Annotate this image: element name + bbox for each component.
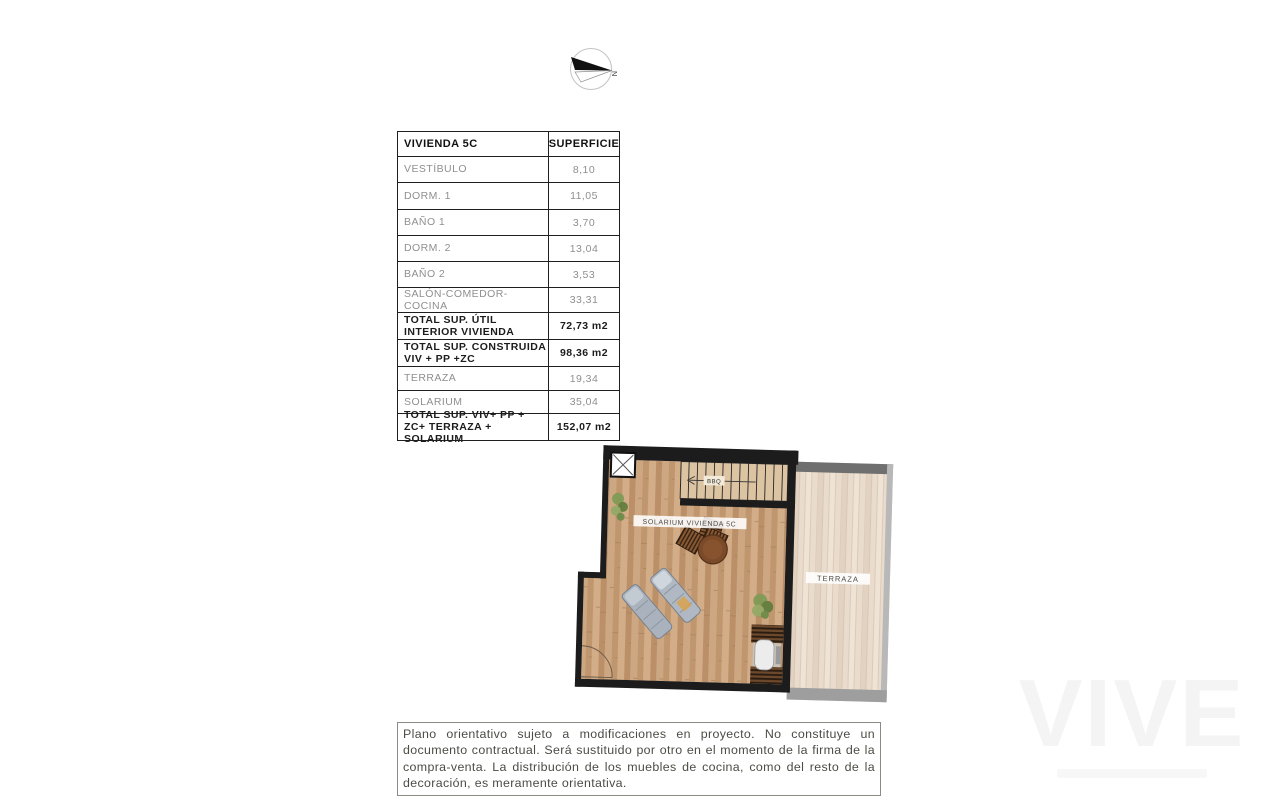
row-label: VESTÍBULO <box>398 163 548 175</box>
skylight-box <box>611 453 636 478</box>
south-needle-icon <box>575 71 612 83</box>
row-label: TOTAL SUP. ÚTIL INTERIOR VIVIENDA <box>398 314 548 338</box>
table-row-total: TOTAL SUP. CONSTRUIDA VIV + PP +ZC 98,36… <box>398 339 619 366</box>
row-value: 35,04 <box>548 391 619 413</box>
table-row: DORM. 1 11,05 <box>398 182 619 209</box>
row-value: 13,04 <box>548 236 619 261</box>
row-value: 19,34 <box>548 367 619 390</box>
row-value: 3,70 <box>548 210 619 235</box>
bbq-bench <box>750 624 784 684</box>
bbq-cylinder <box>754 640 774 671</box>
table-row-total: TOTAL SUP. ÚTIL INTERIOR VIVIENDA 72,73 … <box>398 312 619 339</box>
floor-plan: BBQ <box>571 442 898 711</box>
row-label: TOTAL SUP. CONSTRUIDA VIV + PP +ZC <box>398 341 548 365</box>
watermark-tagline <box>1057 769 1207 778</box>
row-value: 11,05 <box>548 183 619 209</box>
stair-label: BBQ <box>707 479 721 485</box>
table-header-dwelling: VIVIENDA 5C <box>398 138 548 151</box>
vive-watermark: VIVE <box>992 673 1272 778</box>
row-label: BAÑO 1 <box>398 216 548 228</box>
table-header-row: VIVIENDA 5C SUPERFICIE <box>398 132 619 156</box>
compass-n-label: N <box>610 71 619 76</box>
north-needle-icon <box>571 57 612 71</box>
row-value: 33,31 <box>548 288 619 312</box>
terrace-label: TERRAZA <box>817 574 859 584</box>
table-row: TERRAZA 19,34 <box>398 366 619 390</box>
row-value: 3,53 <box>548 262 619 287</box>
table-row: BAÑO 1 3,70 <box>398 209 619 235</box>
surface-table: VIVIENDA 5C SUPERFICIE VESTÍBULO 8,10 DO… <box>397 131 620 441</box>
row-value: 98,36 m2 <box>548 340 619 366</box>
row-value: 152,07 m2 <box>548 414 619 440</box>
row-label: DORM. 1 <box>398 190 548 202</box>
disclaimer-box: Plano orientativo sujeto a modificacione… <box>397 722 881 796</box>
staircase: BBQ <box>680 461 788 501</box>
solarium-floor <box>581 576 608 680</box>
table-row-total: TOTAL SUP. VIV+ PP + ZC+ TERRAZA + SOLAR… <box>398 413 619 440</box>
row-value: 72,73 m2 <box>548 313 619 339</box>
row-label: DORM. 2 <box>398 242 548 254</box>
table-row: BAÑO 2 3,53 <box>398 261 619 287</box>
row-label: TOTAL SUP. VIV+ PP + ZC+ TERRAZA + SOLAR… <box>398 409 548 445</box>
bbq-handle <box>776 646 782 664</box>
watermark-logo: VIVE <box>992 673 1272 755</box>
table-row: SALÓN-COMEDOR-COCINA 33,31 <box>398 287 619 312</box>
row-value: 8,10 <box>548 157 619 182</box>
table-row: DORM. 2 13,04 <box>398 235 619 261</box>
row-label: SOLARIUM <box>398 396 548 408</box>
row-label: BAÑO 2 <box>398 268 548 280</box>
table-row: VESTÍBULO 8,10 <box>398 156 619 182</box>
table-header-surface: SUPERFICIE <box>548 132 619 156</box>
row-label: SALÓN-COMEDOR-COCINA <box>398 288 548 312</box>
disclaimer-text: Plano orientativo sujeto a modificacione… <box>403 727 875 790</box>
row-label: TERRAZA <box>398 372 548 384</box>
north-compass: N <box>564 41 622 99</box>
